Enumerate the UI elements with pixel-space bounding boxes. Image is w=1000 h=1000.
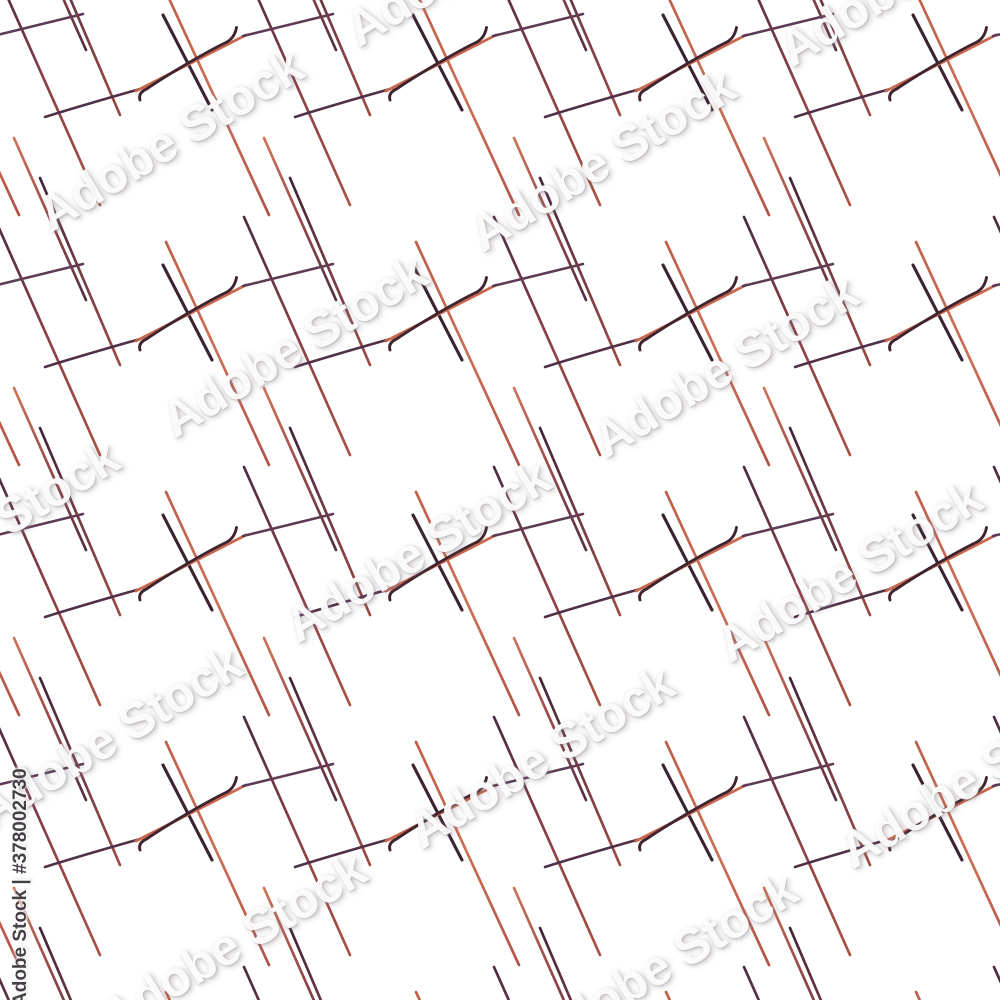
- pattern-fill: [0, 0, 1000, 1000]
- seamless-line-pattern: [0, 0, 1000, 1000]
- stock-pattern-image: Adobe StockAdobe StockAdobe StockAdobe S…: [0, 0, 1000, 1000]
